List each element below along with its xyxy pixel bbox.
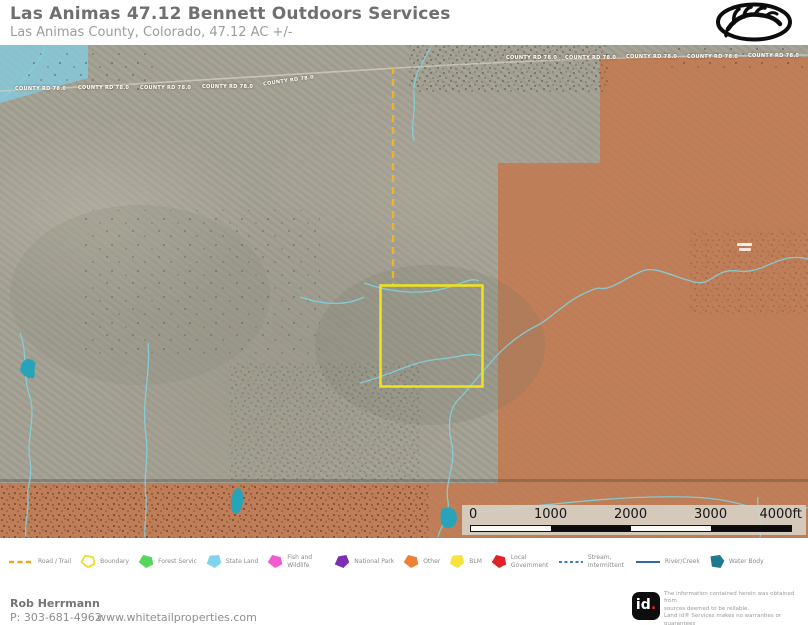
legend-label: Stream, Intermittent	[588, 554, 626, 569]
legend-label: Fish and Wildlife	[287, 554, 325, 569]
legend-item-local-government: Local Government	[491, 554, 549, 569]
legend-item-forest-service: Forest Servic	[138, 554, 197, 569]
county-road-label: COUNTY RD 78.0	[15, 86, 65, 92]
legend-label: Local Government	[511, 554, 549, 569]
county-road-label: COUNTY RD 78.0	[687, 54, 737, 60]
county-road-label: COUNTY RD 78.0	[565, 55, 615, 61]
legend-item-other: Other	[403, 554, 440, 569]
state-land-polygon-icon	[206, 554, 222, 569]
map-export-page: Las Animas 47.12 Bennett Outdoors Servic…	[0, 0, 808, 625]
legend-item-water-body: Water Body	[709, 554, 764, 569]
website-link[interactable]: www.whitetailproperties.com	[97, 611, 257, 624]
disclaimer-line: Land id® Services makes no warranties or…	[664, 613, 804, 625]
legend-item-fish-wildlife: Fish and Wildlife	[267, 554, 325, 569]
stream-intermittent-dash-icon	[558, 557, 584, 567]
legend-item-national-park: National Park	[334, 554, 394, 569]
legend: Road / Trail Boundary Forest Servic Stat…	[0, 538, 808, 585]
scale-bar: 0 1000 2000 3000 4000ft	[462, 505, 806, 535]
disclaimer: The information contained herein was obt…	[664, 591, 804, 625]
national-park-polygon-icon	[334, 554, 350, 569]
water-body-polygon-icon	[709, 554, 725, 569]
county-road-label: COUNTY RD 78.0	[506, 55, 556, 61]
scale-tick: 2000	[614, 507, 647, 522]
legend-label: Road / Trail	[38, 558, 71, 566]
land-id-dot: .	[651, 597, 656, 613]
forest-service-polygon-icon	[138, 554, 154, 569]
other-polygon-icon	[403, 554, 419, 569]
road-trail-dash-icon	[8, 557, 34, 567]
legend-label: BLM	[469, 558, 482, 566]
scale-tick: 3000	[694, 507, 727, 522]
scale-tick: 1000	[534, 507, 567, 522]
county-road-label: COUNTY RD 78.0	[202, 84, 252, 90]
footer: Rob Herrmann P: 303-681-4962 www.whiteta…	[0, 585, 808, 625]
header: Las Animas 47.12 Bennett Outdoors Servic…	[0, 0, 808, 45]
legend-label: River/Creek	[665, 558, 700, 566]
page-title: Las Animas 47.12 Bennett Outdoors Servic…	[10, 4, 451, 24]
scale-tick-end: 4000ft	[759, 507, 802, 522]
legend-label: State Land	[226, 558, 258, 566]
legend-item-river-creek: River/Creek	[635, 557, 700, 567]
disclaimer-line: The information contained herein was obt…	[664, 591, 804, 606]
legend-label: Other	[423, 558, 440, 566]
blm-polygon-icon	[449, 554, 465, 569]
whitetail-antler-logo-icon	[714, 2, 794, 42]
page-subtitle: Las Animas County, Colorado, 47.12 AC +/…	[10, 25, 293, 40]
scale-tick: 0	[469, 507, 477, 522]
boundary-polygon-icon	[80, 554, 96, 569]
legend-item-stream-intermittent: Stream, Intermittent	[558, 554, 626, 569]
land-id-text: id	[636, 597, 651, 613]
legend-label: Boundary	[100, 558, 129, 566]
legend-label: Forest Servic	[158, 558, 197, 566]
river-creek-line-icon	[635, 557, 661, 567]
county-road-label: COUNTY RD 78.0	[748, 53, 798, 59]
scale-bar-segments	[470, 525, 792, 532]
county-road-label: COUNTY RD 78.0	[140, 85, 190, 91]
legend-item-road-trail: Road / Trail	[8, 557, 71, 567]
county-road-label: COUNTY RD 78.0	[78, 85, 128, 91]
legend-item-blm: BLM	[449, 554, 482, 569]
legend-item-boundary: Boundary	[80, 554, 129, 569]
legend-label: National Park	[354, 558, 394, 566]
land-id-logo: id.	[632, 592, 660, 620]
agent-phone: P: 303-681-4962	[10, 611, 102, 624]
legend-label: Water Body	[729, 558, 764, 566]
map-canvas[interactable]: COUNTY RD 78.0 COUNTY RD 78.0 COUNTY RD …	[0, 45, 808, 538]
local-government-polygon-icon	[491, 554, 507, 569]
legend-item-state-land: State Land	[206, 554, 258, 569]
agent-name: Rob Herrmann	[10, 597, 100, 610]
county-road-label: COUNTY RD 78.0	[626, 54, 676, 60]
map-overlays	[0, 45, 808, 538]
fish-wildlife-polygon-icon	[267, 554, 283, 569]
